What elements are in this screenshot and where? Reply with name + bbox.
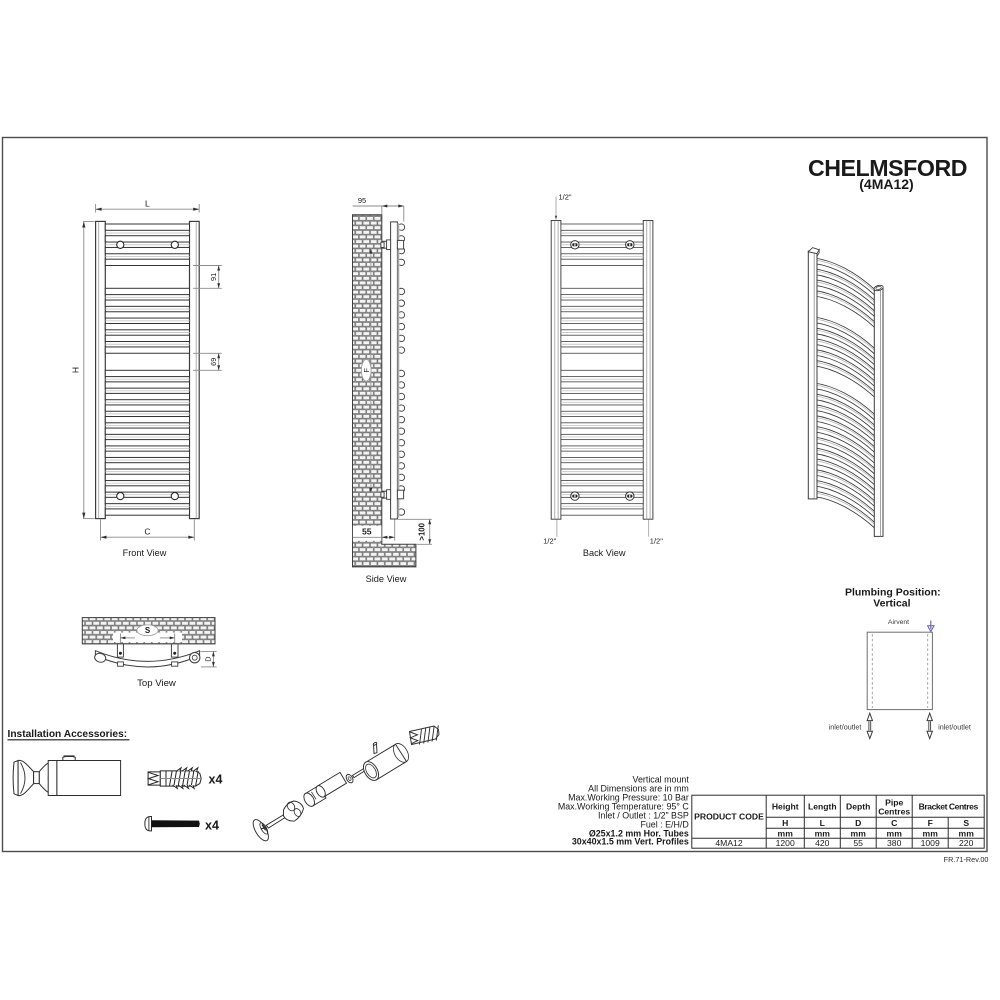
svg-text:380: 380 [887,838,902,848]
svg-text:D: D [203,656,212,661]
svg-text:mm: mm [778,828,794,838]
svg-text:F: F [928,818,933,828]
svg-text:Back View: Back View [583,548,626,558]
svg-text:F: F [362,368,371,373]
svg-text:D: D [855,818,861,828]
svg-text:55: 55 [362,527,372,537]
svg-text:L: L [820,818,825,828]
svg-text:L: L [145,199,150,209]
svg-text:(4MA12): (4MA12) [859,176,913,192]
svg-text:inlet/outlet: inlet/outlet [938,723,971,732]
svg-text:Front View: Front View [123,548,167,558]
svg-text:S: S [145,626,151,635]
svg-text:mm: mm [887,828,903,838]
svg-text:91: 91 [209,273,218,281]
svg-text:Vertical: Vertical [873,598,910,610]
svg-text:95: 95 [358,196,366,205]
svg-text:mm: mm [959,828,975,838]
svg-text:C: C [144,526,150,536]
svg-text:30x40x1.5 mm Vert. Profiles: 30x40x1.5 mm Vert. Profiles [572,837,689,847]
svg-text:Top View: Top View [137,678,176,689]
svg-text:1009: 1009 [921,838,940,848]
svg-text:420: 420 [815,838,830,848]
svg-text:Length: Length [808,801,837,811]
svg-text:FR.71-Rev.00: FR.71-Rev.00 [944,855,989,864]
svg-text:1/2": 1/2" [650,536,663,545]
svg-text:mm: mm [851,828,867,838]
svg-text:PRODUCT CODE: PRODUCT CODE [694,811,764,821]
svg-text:220: 220 [959,838,974,848]
svg-text:4MA12: 4MA12 [715,838,742,848]
svg-text:Height: Height [772,801,799,811]
svg-text:inlet/outlet: inlet/outlet [829,723,862,732]
svg-text:mm: mm [815,828,831,838]
svg-text:H: H [71,367,81,373]
svg-text:>100: >100 [417,522,426,540]
svg-text:x4: x4 [209,773,223,787]
svg-text:Depth: Depth [846,801,870,811]
svg-text:Side View: Side View [366,574,407,584]
svg-text:55: 55 [853,838,863,848]
svg-text:1/2": 1/2" [543,536,556,545]
svg-text:Installation Accessories:: Installation Accessories: [8,729,128,740]
svg-text:x4: x4 [205,819,219,833]
svg-text:Centres: Centres [878,806,910,816]
svg-text:H: H [782,818,788,828]
svg-text:Airvent: Airvent [888,619,909,626]
svg-text:Bracket Centres: Bracket Centres [919,801,979,811]
svg-text:C: C [891,818,897,828]
svg-text:69: 69 [209,358,218,366]
svg-text:1200: 1200 [776,838,795,848]
svg-text:1/2": 1/2" [559,193,572,202]
svg-text:mm: mm [923,828,939,838]
svg-text:S: S [963,818,969,828]
